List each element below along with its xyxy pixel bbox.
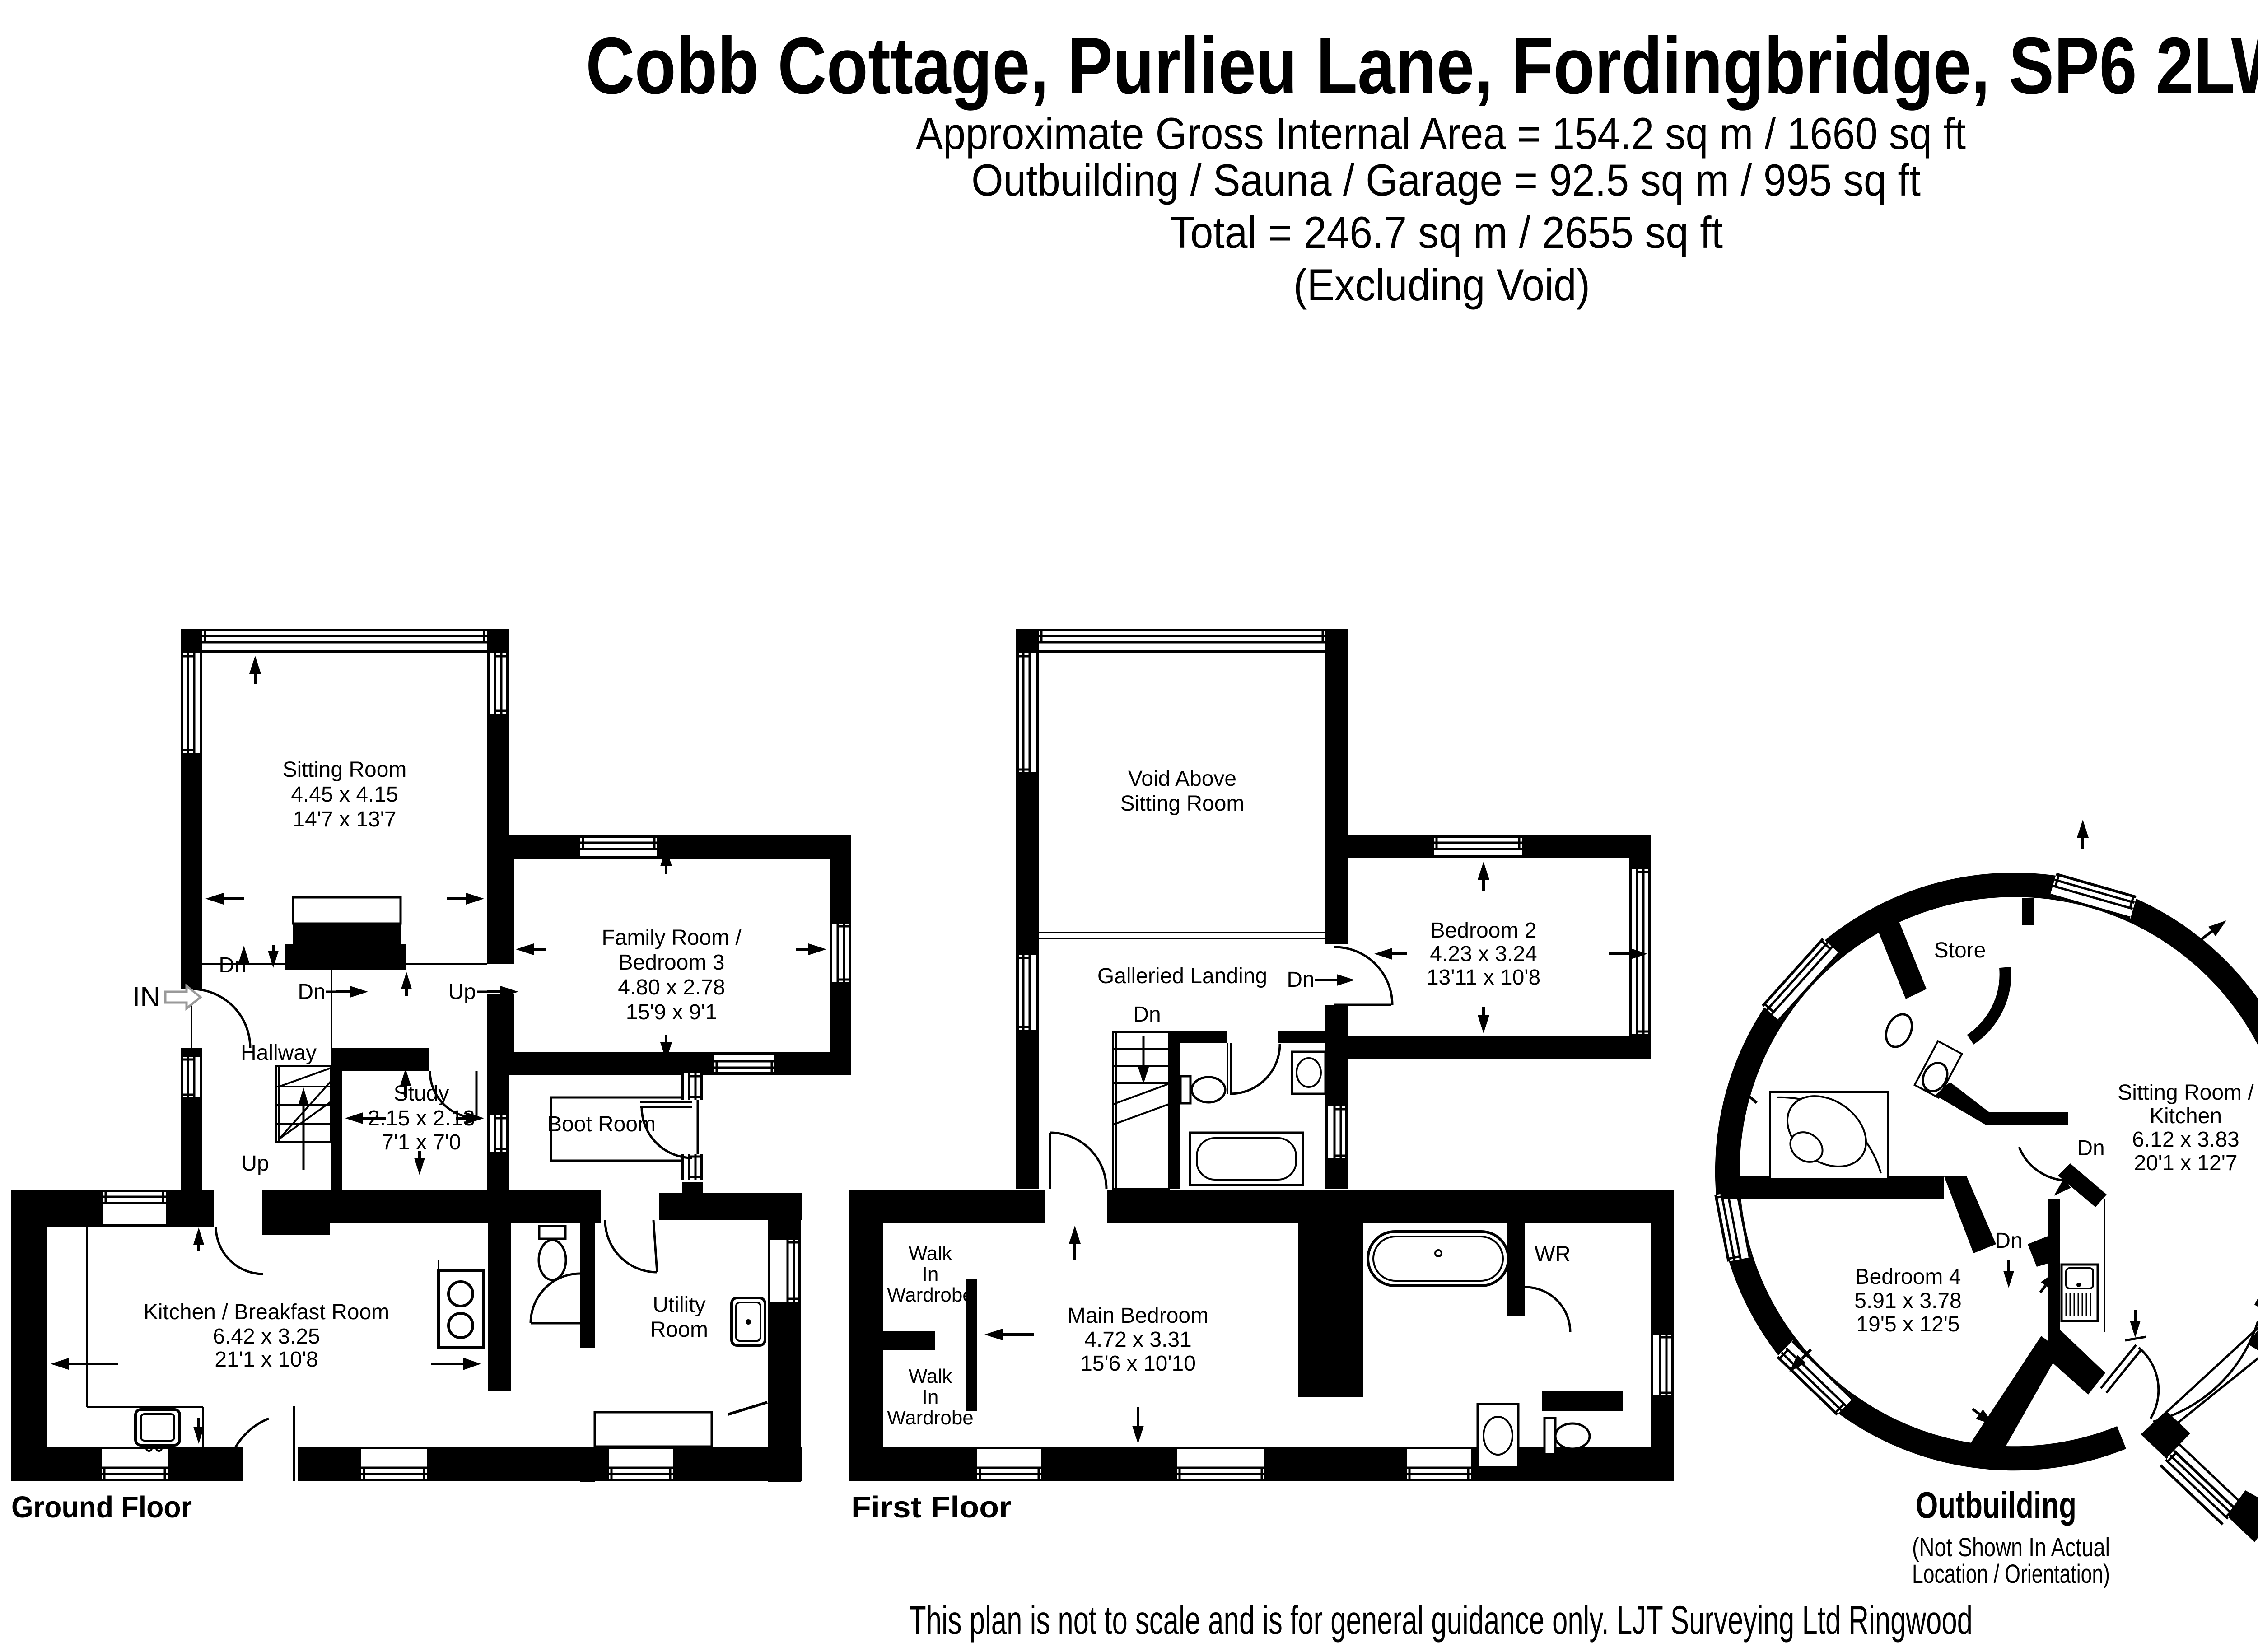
svg-text:Dn: Dn	[2077, 1136, 2104, 1160]
svg-text:Hallway: Hallway	[241, 1041, 317, 1065]
svg-text:IN: IN	[132, 981, 160, 1013]
svg-text:Kitchen / Breakfast Room: Kitchen / Breakfast Room	[144, 1300, 389, 1324]
svg-text:Dn: Dn	[1133, 1003, 1161, 1027]
svg-text:7'1 x 7'0: 7'1 x 7'0	[382, 1130, 461, 1154]
svg-text:4.23 x 3.24: 4.23 x 3.24	[1430, 942, 1537, 966]
svg-text:4.72 x 3.31: 4.72 x 3.31	[1084, 1328, 1192, 1352]
svg-text:(Not Shown In Actual: (Not Shown In Actual	[1912, 1533, 2110, 1562]
svg-text:Family Room /: Family Room /	[602, 926, 742, 950]
svg-text:5.91 x 3.78: 5.91 x 3.78	[1854, 1289, 1962, 1313]
svg-text:Galleried Landing: Galleried Landing	[1097, 964, 1267, 988]
svg-text:4.45 x 4.15: 4.45 x 4.15	[291, 783, 398, 807]
svg-text:Wardrobe: Wardrobe	[887, 1284, 974, 1306]
svg-text:Main Bedroom: Main Bedroom	[1068, 1304, 1208, 1328]
svg-text:Bedroom 4: Bedroom 4	[1855, 1265, 1961, 1289]
svg-text:WR: WR	[1535, 1242, 1571, 1266]
svg-text:Outbuilding: Outbuilding	[1916, 1484, 2076, 1526]
svg-text:Up: Up	[241, 1152, 269, 1176]
svg-text:13'11 x 10'8: 13'11 x 10'8	[1427, 966, 1540, 989]
svg-text:21'1 x 10'8: 21'1 x 10'8	[215, 1348, 318, 1372]
svg-text:Up: Up	[448, 980, 476, 1004]
svg-text:This plan is not to scale and: This plan is not to scale and is for gen…	[909, 1597, 1973, 1643]
svg-text:Dn: Dn	[219, 953, 246, 977]
svg-text:Ground Floor: Ground Floor	[11, 1490, 192, 1524]
svg-text:Wardrobe: Wardrobe	[887, 1407, 974, 1429]
svg-text:Dn: Dn	[1995, 1229, 2022, 1253]
svg-text:Cobb Cottage, Purlieu Lane, Fo: Cobb Cottage, Purlieu Lane, Fordingbridg…	[586, 21, 2258, 111]
svg-text:In: In	[922, 1263, 939, 1285]
svg-text:20'1 x 12'7: 20'1 x 12'7	[2134, 1151, 2237, 1175]
svg-text:19'5 x 12'5: 19'5 x 12'5	[1856, 1312, 1959, 1336]
svg-text:6.12 x 3.83: 6.12 x 3.83	[2132, 1128, 2239, 1152]
svg-text:Sitting Room: Sitting Room	[1120, 792, 1245, 816]
svg-text:Store: Store	[1934, 938, 1986, 962]
svg-text:6.42 x 3.25: 6.42 x 3.25	[213, 1325, 320, 1349]
svg-text:Bedroom 3: Bedroom 3	[619, 951, 725, 975]
svg-text:Outbuilding / Sauna / Garage =: Outbuilding / Sauna / Garage = 92.5 sq m…	[971, 155, 1921, 205]
svg-text:In: In	[922, 1386, 939, 1408]
svg-text:4.80 x 2.78: 4.80 x 2.78	[618, 975, 725, 999]
svg-text:(Excluding Void): (Excluding Void)	[1293, 260, 1590, 310]
svg-text:Room: Room	[650, 1318, 708, 1342]
svg-text:14'7 x 13'7: 14'7 x 13'7	[293, 807, 396, 831]
svg-text:15'9 x 9'1: 15'9 x 9'1	[626, 1000, 717, 1024]
svg-text:Approximate Gross Internal Are: Approximate Gross Internal Area = 154.2 …	[916, 108, 1966, 159]
svg-text:Walk: Walk	[909, 1242, 952, 1265]
svg-text:Utility: Utility	[653, 1293, 705, 1317]
svg-text:Walk: Walk	[909, 1365, 952, 1387]
svg-text:Bedroom 2: Bedroom 2	[1431, 919, 1537, 943]
svg-text:Void Above: Void Above	[1128, 767, 1236, 791]
svg-text:Kitchen: Kitchen	[2150, 1104, 2222, 1128]
svg-text:First Floor: First Floor	[851, 1490, 1012, 1524]
svg-text:Boot Room: Boot Room	[547, 1112, 656, 1136]
svg-text:Location / Orientation): Location / Orientation)	[1912, 1559, 2110, 1589]
svg-text:Total = 246.7 sq m / 2655 sq f: Total = 246.7 sq m / 2655 sq ft	[1170, 207, 1723, 257]
svg-text:Sitting Room /: Sitting Room /	[2118, 1081, 2254, 1105]
svg-text:Sitting Room: Sitting Room	[283, 758, 407, 782]
svg-text:15'6 x 10'10: 15'6 x 10'10	[1080, 1352, 1196, 1376]
svg-text:Dn: Dn	[1287, 968, 1314, 992]
svg-text:Dn: Dn	[298, 980, 325, 1004]
